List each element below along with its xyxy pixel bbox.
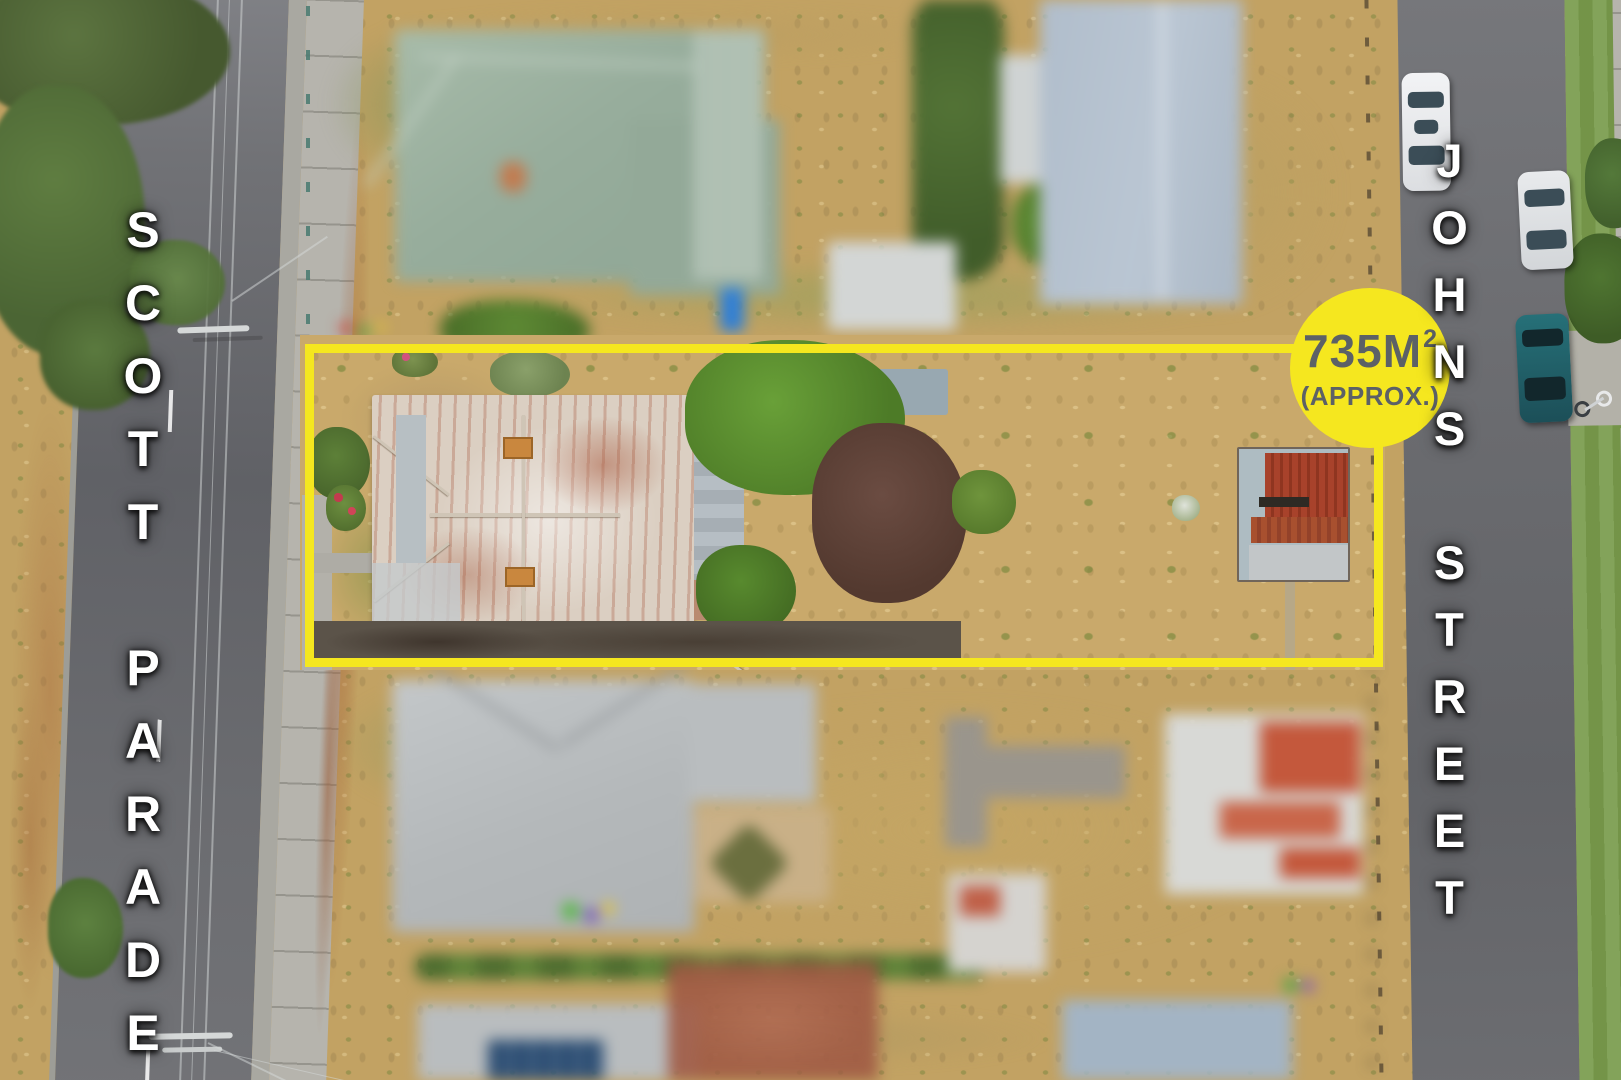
- building-ridge: [1160, 0, 1164, 300]
- property-boundary: [305, 344, 1383, 667]
- play-item: [376, 322, 386, 332]
- car-rear-window: [1526, 229, 1566, 251]
- shed-rust-patch: [960, 886, 1000, 916]
- car-sunroof: [1415, 120, 1438, 134]
- neighbour-bottom-blurred: [300, 662, 1375, 1080]
- car-windscreen: [1407, 91, 1444, 108]
- blue-grey-building: [1040, 0, 1242, 304]
- play-item: [562, 902, 580, 920]
- aerial-photo: 735M2 (APPROX.) SCOTT PARADE JOHNS STREE…: [0, 0, 1621, 1080]
- play-item: [340, 322, 352, 334]
- area-value: 735M2: [1303, 328, 1437, 374]
- roof-panels: [695, 30, 763, 280]
- shed-rust-patch: [1220, 802, 1340, 838]
- parked-car-teal: [1515, 313, 1573, 423]
- garden-item: [1284, 978, 1298, 992]
- street-label-scott-parade: SCOTT PARADE: [114, 202, 172, 1078]
- wheelie-bin: [720, 288, 744, 332]
- play-item: [602, 902, 615, 915]
- grey-roof-wing: [688, 684, 816, 802]
- car-windscreen: [1524, 188, 1564, 208]
- white-shed: [828, 242, 956, 330]
- blue-grey-roof: [1062, 1000, 1292, 1080]
- garden-item: [1302, 980, 1314, 992]
- street-label-johns-street: JOHNS STREET: [1422, 134, 1477, 938]
- driveway: [945, 717, 987, 847]
- car-windscreen: [1522, 328, 1563, 347]
- neighbour-top-blurred: [300, 0, 1375, 348]
- solar-panels: [488, 1040, 604, 1080]
- grey-roof-house: [392, 680, 694, 932]
- hedge: [912, 0, 1004, 280]
- brick-paving: [668, 962, 878, 1080]
- play-item: [584, 908, 599, 923]
- small-tree: [48, 878, 123, 978]
- car-rear-window: [1524, 376, 1565, 402]
- parked-car-white: [1517, 170, 1574, 270]
- roof-rust-patch: [500, 162, 526, 192]
- area-qualifier: (APPROX.): [1301, 383, 1440, 409]
